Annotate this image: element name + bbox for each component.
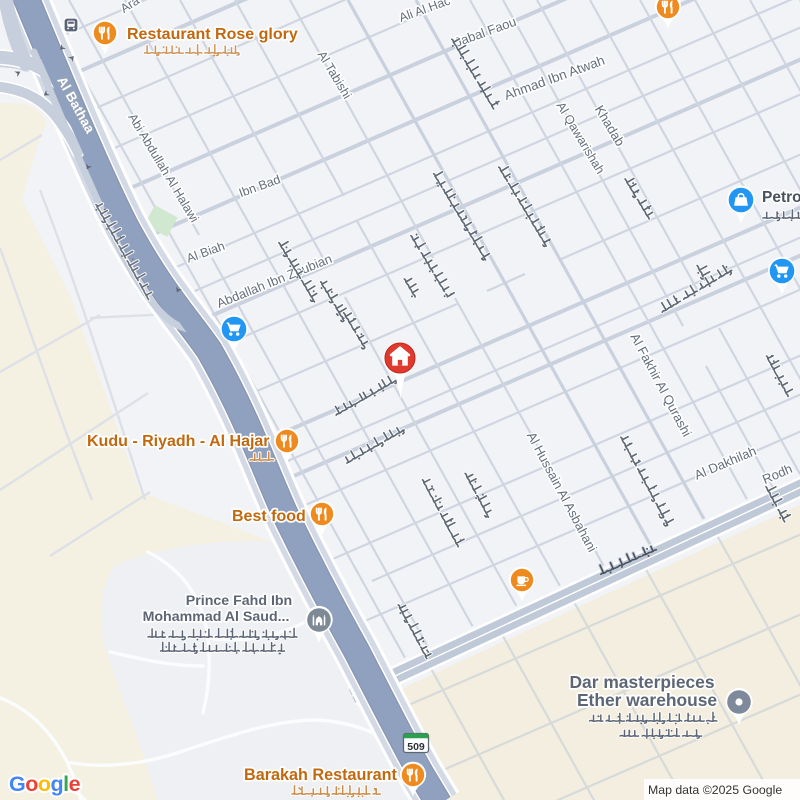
svg-text:Mohammad Al Saud...: Mohammad Al Saud... xyxy=(143,609,290,625)
svg-text:Ether warehouse: Ether warehouse xyxy=(577,690,717,710)
svg-text:Prince Fahd Ibn: Prince Fahd Ibn xyxy=(186,593,292,609)
svg-text:Petro: Petro xyxy=(762,189,800,206)
svg-text:Map data ©2025 Google: Map data ©2025 Google xyxy=(648,783,782,797)
svg-text:Restaurant Rose glory: Restaurant Rose glory xyxy=(127,26,298,43)
svg-text:Barakah Restaurant: Barakah Restaurant xyxy=(244,766,398,784)
svg-text:Google: Google xyxy=(9,772,81,796)
svg-text:509: 509 xyxy=(407,741,425,753)
svg-text:Dar masterpieces: Dar masterpieces xyxy=(569,672,714,692)
svg-text:Best food: Best food xyxy=(232,508,306,525)
svg-text:Kudu - Riyadh - Al Hajar: Kudu - Riyadh - Al Hajar xyxy=(87,433,270,450)
